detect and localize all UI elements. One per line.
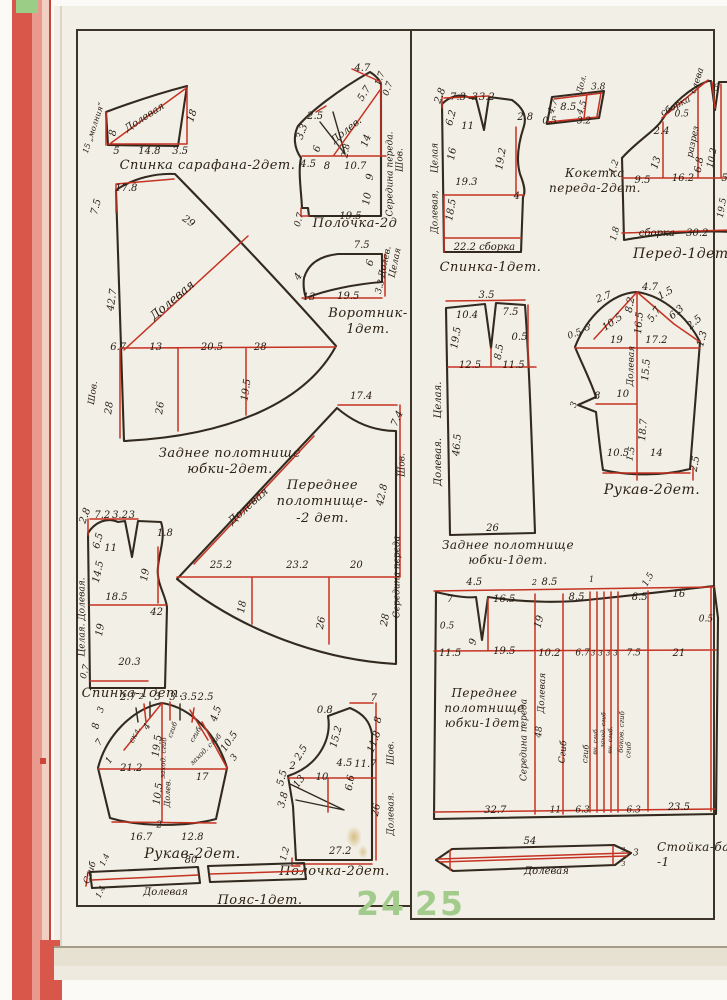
pattern-piece-rukav-left: 2.72333.52.538скл.4сгибсгибзаход. сгиб71… [90, 692, 255, 852]
measurement-label: 2.8 [517, 113, 533, 123]
measurement-label: 0.5 [675, 111, 689, 120]
measurement-label: 23.2 [286, 561, 308, 571]
measurement-label: 7.5 [627, 649, 641, 658]
measurement-label: 6.3 [575, 806, 589, 815]
measurement-label: 21.2 [120, 764, 142, 774]
measurement-label: 6.7 [575, 649, 589, 658]
measurement-label: Долевая [143, 888, 188, 898]
measurement-label: 10.7 [344, 162, 366, 172]
measurement-label: 22.2 сборка [454, 243, 516, 253]
measurement-label: 3.5 [172, 147, 188, 157]
scanned-pattern-page: { "page": { "left_number": "24", "right_… [0, 0, 727, 1000]
measurement-label: 3.5 [479, 291, 495, 301]
measurement-label: 0.5 [440, 623, 454, 632]
measurement-label: Долевая, [432, 190, 441, 233]
measurement-label: 6.7 [110, 343, 126, 353]
measurement-label: 54 [523, 837, 536, 847]
measurement-label: Шов. [399, 454, 408, 478]
measurement-label: 14 [650, 449, 663, 459]
measurement-label: Шов. [388, 741, 397, 765]
pattern-piece-spinka-left: 2.87.23.231.86.51114.51918.5421920.30.7Ц… [74, 505, 192, 695]
measurement-label: 7.3 [450, 93, 466, 103]
measurement-label: Долевая [524, 867, 569, 877]
page-crease-shadow [60, 6, 62, 946]
measurement-label: 10.2 [538, 649, 560, 659]
measurement-label: 2 [532, 579, 537, 587]
measurement-label: 4 [514, 192, 520, 202]
pattern-piece-front-skirt-2: 17.47.442.8Шов.Середина передаДолевая25.… [162, 392, 408, 664]
measurement-label: 16 [672, 590, 685, 600]
measurement-label: 19.5 [493, 647, 515, 657]
measurement-label: 3.8 [591, 83, 605, 92]
page-number-right: 25 [415, 884, 465, 923]
measurement-label: 3.2 [112, 511, 128, 521]
measurement-label: 3 [622, 848, 626, 854]
measurement-label: 0.5 [699, 615, 713, 624]
measurement-label: 3 [472, 93, 478, 103]
measurement-label: 8.5 [569, 593, 585, 603]
pattern-outline-svg [428, 288, 578, 568]
measurement-label: 30.2 [686, 229, 708, 239]
measurement-label: 8.5 [632, 593, 648, 603]
measurement-label: 28 [380, 613, 392, 627]
measurement-label: 14.8 [138, 147, 160, 157]
measurement-label: 26 [316, 616, 328, 630]
measurement-label: 2.5 [307, 112, 323, 122]
measurement-label: 11 [104, 544, 117, 554]
measurement-label: 10 [316, 773, 329, 783]
measurement-label: 2.5 [198, 693, 214, 703]
measurement-label: 16.5 [493, 595, 515, 605]
measurement-label: 4.5 [466, 578, 482, 588]
piece-caption-back-skirt-1: Заднее полотнище юбки-1дет. [428, 538, 588, 568]
measurement-label: 32.7 [484, 806, 506, 816]
measurement-label: 5 [721, 174, 727, 184]
measurement-label: 16.2 [672, 174, 694, 184]
measurement-label: 3 [591, 650, 595, 657]
measurement-label: 1.8 [157, 529, 173, 539]
measurement-label: 7 [371, 694, 377, 704]
piece-caption-poyas: Пояс-1дет. [205, 893, 315, 909]
measurement-label: 11.7 [354, 760, 376, 770]
measurement-label: 7 [447, 595, 453, 605]
measurement-label: 7.2 [94, 511, 110, 521]
page-bottom-edge-2 [54, 966, 727, 980]
measurement-label: 3.2 [577, 118, 591, 127]
measurement-label: 20.3 [118, 658, 140, 668]
measurement-label: 26 [371, 803, 383, 817]
measurement-label: Долевая. [388, 792, 397, 835]
measurement-label: 17.4 [350, 392, 372, 402]
measurement-label: сгиб [625, 741, 633, 757]
measurement-label: 3 [129, 511, 135, 521]
measurement-label: 0.5 [512, 333, 528, 343]
piece-caption-front-skirt-2: Переднее полотнище- -2 дет. [250, 478, 395, 527]
measurement-label: 21 [672, 649, 685, 659]
frame-left [76, 29, 78, 907]
measurement-label: 10.4 [456, 311, 478, 321]
measurement-label: 0.5 [542, 118, 556, 127]
measurement-label: 6.8 [693, 156, 706, 173]
measurement-label: 2 [156, 822, 162, 831]
measurement-label: 18.7 [638, 418, 650, 441]
measurement-label: 3 [613, 650, 617, 657]
pattern-piece-koketka: Дол.3.84.78.54.50.53.2 [542, 80, 617, 140]
piece-caption-front-skirt-1: Переднее полотнище юбки-1дет. [432, 686, 537, 731]
measurement-label: 80 [185, 856, 198, 866]
pattern-piece-polochka-bottom: 70.815.2811.82.525.513104.511.76.63.826Ш… [266, 688, 406, 868]
measurement-label: 3 [169, 693, 175, 703]
measurement-label: 5 [113, 147, 119, 157]
measurement-label: 19.5 [717, 197, 727, 218]
measurement-label: Середина переда [394, 536, 403, 618]
measurement-label: 3 [585, 325, 591, 334]
measurement-label: 4.5 [336, 759, 352, 769]
measurement-label: 8 [91, 722, 102, 730]
green-page-tab [16, 0, 38, 13]
frame-top [76, 29, 714, 31]
measurement-label: 1 [589, 576, 594, 584]
measurement-label: 42 [150, 608, 163, 618]
measurement-label: 18.5 [105, 593, 127, 603]
piece-caption-stoyka: Стойка-ба -1 [657, 840, 727, 870]
measurement-label: 23.5 [668, 803, 690, 813]
measurement-label: 11.5 [439, 649, 461, 659]
measurement-label: 15.5 [641, 359, 653, 382]
pattern-piece-rukav-right: 2.74.71.58.210.516.55.76.32.51.30.531917… [562, 282, 722, 487]
measurement-label: вн. сгиб [593, 729, 600, 754]
measurement-label: 11 [550, 806, 561, 815]
measurement-label: 3.5 [181, 693, 197, 703]
measurement-label: 12.8 [181, 833, 203, 843]
measurement-label: 16.7 [130, 833, 152, 843]
margin-mark [40, 758, 46, 764]
measurement-label: 11.5 [502, 361, 524, 371]
pattern-outline-svg [428, 82, 548, 262]
page-edge-line [49, 0, 51, 1000]
page-bottom-edge [54, 948, 727, 966]
measurement-label: сгиб [581, 745, 591, 764]
measurement-label: 13 [149, 343, 162, 353]
pattern-piece-pered: сборкаслева60.52.4разрез6.81310.21.29.51… [608, 60, 727, 265]
piece-caption-rukav-right: Рукав-2дет. [592, 482, 712, 500]
measurement-label: 27.2 [329, 847, 351, 857]
measurement-label: 3.2 [479, 93, 495, 103]
measurement-label: 7.5 [354, 241, 370, 251]
measurement-label: 2 [289, 762, 295, 772]
measurement-label: 17 [196, 773, 209, 783]
measurement-label: 6 [713, 84, 719, 93]
measurement-label: 20 [350, 561, 363, 571]
measurement-label: 2.4 [654, 127, 670, 137]
measurement-label: 3 [633, 849, 639, 858]
measurement-label: вн. сгиб. [608, 726, 615, 753]
measurement-label: 2 [139, 693, 144, 701]
page-divider [410, 29, 412, 920]
measurement-label: 11 [461, 122, 474, 132]
piece-caption-pered: Перед-1дет. [633, 246, 727, 264]
measurement-label: Целая [432, 142, 441, 172]
pattern-piece-back-skirt-1: 3.510.47.50.519.58.512.511.546.5Целая.До… [428, 288, 578, 568]
measurement-label: 0.8 [317, 706, 333, 716]
measurement-label: 46.5 [452, 433, 464, 456]
measurement-label: 3 [606, 650, 610, 657]
measurement-label: 17.8 [115, 184, 137, 194]
measurement-label: сборка [639, 229, 675, 239]
piece-caption-spinka-right: Спинка-1дет. [428, 260, 553, 276]
measurement-label: 17.2 [645, 336, 667, 346]
page-number-left: 24 [330, 884, 406, 923]
book-spine-edge [12, 0, 32, 1000]
measurement-label: 28 [254, 343, 267, 353]
measurement-label: Целая. [434, 382, 444, 419]
measurement-label: 6.3 [627, 806, 641, 815]
measurement-label: 8 [594, 392, 600, 402]
page-stack-edge [32, 0, 42, 1000]
pattern-outline-svg [162, 392, 408, 664]
measurement-label: Долев. [163, 778, 172, 807]
measurement-label: 2.7 [120, 693, 136, 703]
measurement-label: 8.5 [560, 103, 576, 113]
measurement-label: Шов. [397, 148, 406, 172]
measurement-label: 26 [486, 524, 499, 534]
measurement-label: 4.7 [354, 64, 370, 74]
pattern-outline-svg [90, 692, 255, 852]
measurement-label: 19.3 [455, 178, 477, 188]
measurement-label: 28 [104, 401, 116, 415]
pattern-piece-spinka-right: 2.87.333.22.86.2111619.219.3418.522.2 сб… [428, 82, 548, 262]
measurement-label: 3 [622, 862, 626, 868]
measurement-label: Долевая. [434, 438, 444, 486]
measurement-label: 10 [616, 390, 629, 400]
pattern-piece-stoyka: 54Долевая333 [430, 838, 638, 883]
measurement-label: 7.5 [503, 308, 519, 318]
measurement-label: Середина переда. [386, 131, 395, 216]
measurement-label: 25.2 [210, 561, 232, 571]
measurement-label: Целая. Долевая. [79, 578, 88, 657]
measurement-label: 19 [610, 336, 623, 346]
measurement-label: 8.5 [541, 578, 557, 588]
measurement-label: 9.5 [635, 176, 651, 186]
measurement-label: 3 [154, 693, 160, 703]
measurement-label: 12.5 [459, 361, 481, 371]
measurement-label: 20.5 [201, 343, 223, 353]
measurement-label: 3 [598, 650, 602, 657]
